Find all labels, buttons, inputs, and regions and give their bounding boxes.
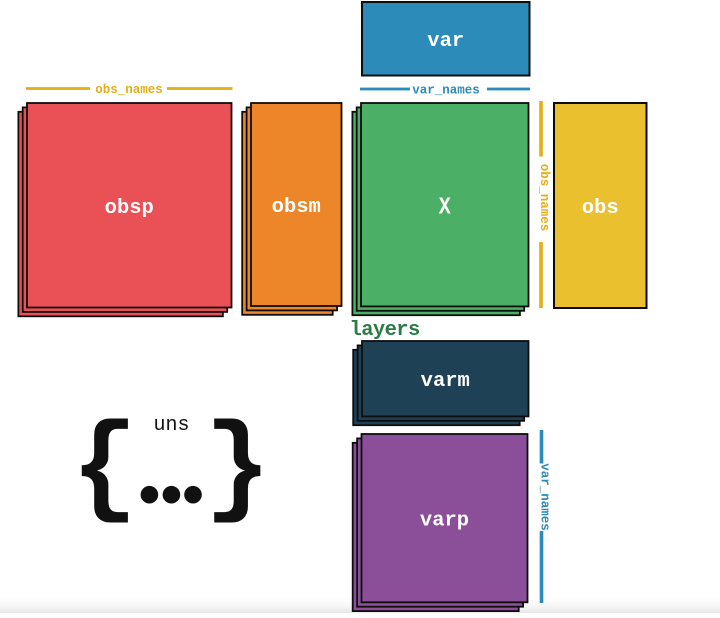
- svg-text:var_names: var_names: [412, 83, 480, 97]
- svg-text:obs: obs: [582, 197, 619, 220]
- svg-text:obsm: obsm: [272, 196, 321, 219]
- svg-text:layers: layers: [350, 319, 421, 342]
- svg-text:}: }: [204, 409, 271, 534]
- svg-text:var_names: var_names: [538, 463, 552, 531]
- svg-text:{: {: [71, 409, 138, 534]
- svg-text:var: var: [427, 30, 464, 53]
- svg-text:obs_names: obs_names: [537, 164, 551, 232]
- svg-text:varm: varm: [421, 370, 470, 393]
- svg-text:obsp: obsp: [105, 197, 154, 220]
- svg-text:obs_names: obs_names: [95, 83, 163, 97]
- svg-text:X: X: [439, 193, 452, 221]
- svg-text:uns: uns: [153, 414, 189, 437]
- svg-text:varp: varp: [420, 510, 469, 533]
